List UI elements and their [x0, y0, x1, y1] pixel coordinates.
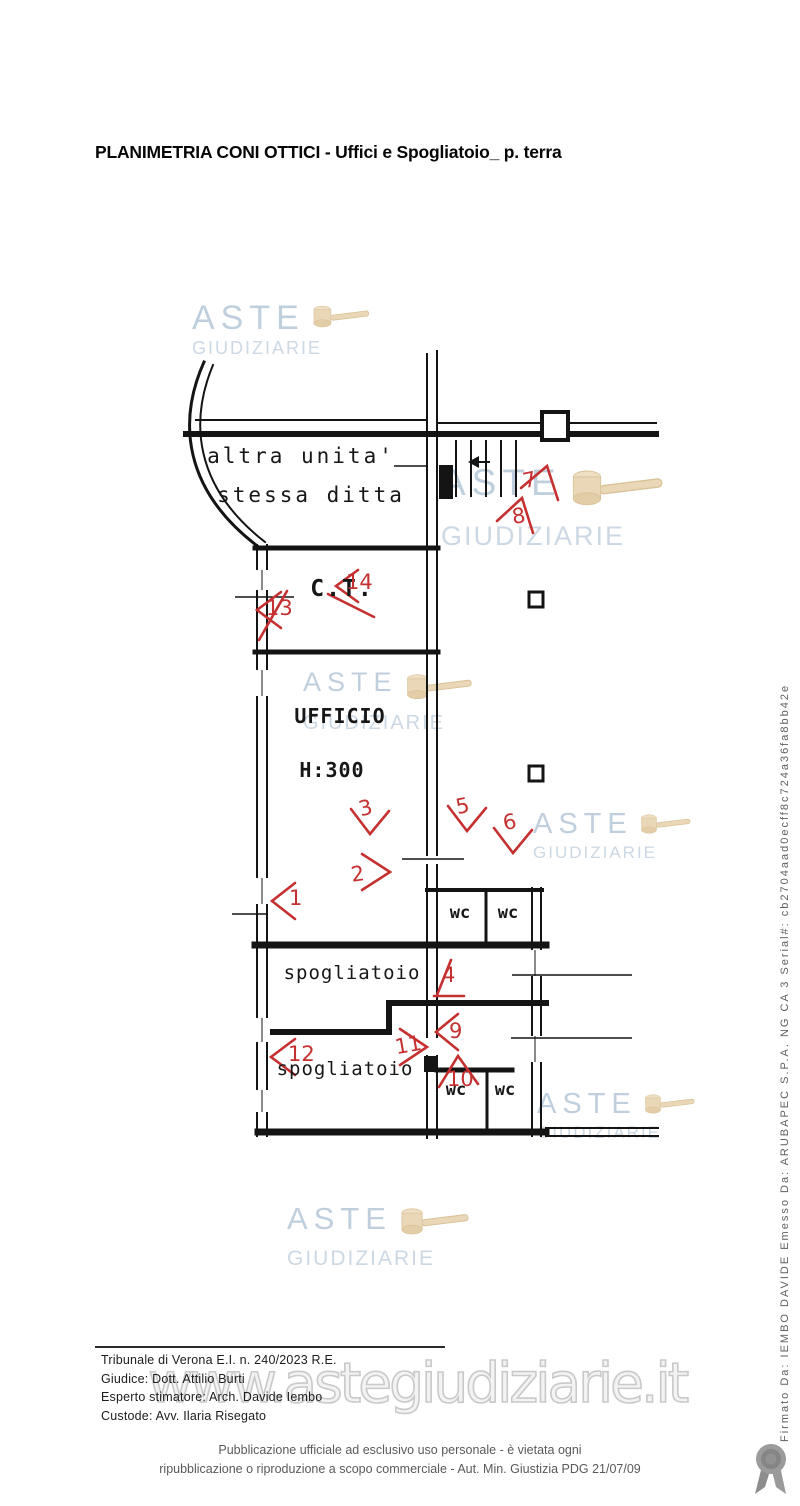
footer-line-2: ripubblicazione o riproduzione a scopo c… — [60, 1460, 740, 1479]
room-label-spogliatoio-1: spogliatoio — [284, 962, 421, 984]
cone-marker-label-8: 8 — [511, 505, 527, 528]
case-expert-line: Esperto stimatore: Arch. Davide Iembo — [101, 1388, 337, 1407]
floor-plan-drawing — [180, 350, 660, 1140]
gavel-icon — [397, 1205, 472, 1247]
cone-marker-label-9: 9 — [449, 1021, 462, 1042]
publication-footer: Pubblicazione ufficiale ad esclusivo uso… — [60, 1441, 740, 1479]
cone-marker-label-11: 11 — [393, 1033, 423, 1058]
cone-marker-label-12: 12 — [288, 1044, 315, 1065]
cone-marker-label-2: 2 — [350, 863, 366, 886]
watermark-aste-giudiziarie: ASTE GIUDIZIARIE — [192, 301, 372, 357]
room-label-wc-2: wc — [498, 903, 518, 923]
document-page: PLANIMETRIA CONI OTTICI - Uffici e Spogl… — [0, 0, 800, 1506]
gavel-icon — [310, 303, 372, 338]
cone-marker-label-4: 4 — [442, 965, 455, 986]
case-judge-line: Giudice: Dott. Attilio Burti — [101, 1370, 337, 1389]
case-custodian-line: Custode: Avv. Ilaria Risegato — [101, 1407, 337, 1426]
room-label-ufficio: UFFICIO — [294, 704, 385, 728]
stair-direction-arrow — [468, 456, 479, 468]
cone-marker-label-13: 13 — [266, 598, 293, 619]
room-label-altra-unita: altra unita' — [207, 444, 395, 468]
watermark-giudiziarie-text: GIUDIZIARIE — [287, 1248, 472, 1269]
staircase — [456, 440, 516, 497]
footer-line-1: Pubblicazione ufficiale ad esclusivo uso… — [60, 1441, 740, 1460]
room-label-wc-1: wc — [450, 903, 470, 923]
door-jamb — [424, 1056, 438, 1072]
room-label-wc-4: wc — [495, 1080, 515, 1100]
dimension-lines — [232, 466, 632, 1038]
stair-wall-block — [439, 465, 453, 499]
cone-marker-label-1: 1 — [289, 888, 302, 909]
watermark-aste-text: ASTE — [287, 1203, 392, 1234]
signature-seal-icon — [746, 1440, 798, 1502]
page-title: PLANIMETRIA CONI OTTICI - Uffici e Spogl… — [95, 142, 562, 163]
case-info-block: Tribunale di Verona E.I. n. 240/2023 R.E… — [101, 1351, 337, 1425]
room-label-stessa-ditta: stessa ditta — [217, 483, 405, 507]
watermark-aste-giudiziarie: ASTE GIUDIZIARIE — [287, 1203, 472, 1269]
cone-marker-label-14: 14 — [346, 572, 373, 593]
case-court-line: Tribunale di Verona E.I. n. 240/2023 R.E… — [101, 1351, 337, 1370]
divider-rule — [95, 1346, 445, 1348]
room-height-label: H:300 — [299, 758, 364, 782]
cone-marker-label-10: 10 — [447, 1069, 474, 1090]
digital-signature-text: Firmato Da: IEMBO DAVIDE Emesso Da: ARUB… — [779, 282, 793, 1442]
watermark-aste-text: ASTE — [192, 301, 305, 335]
